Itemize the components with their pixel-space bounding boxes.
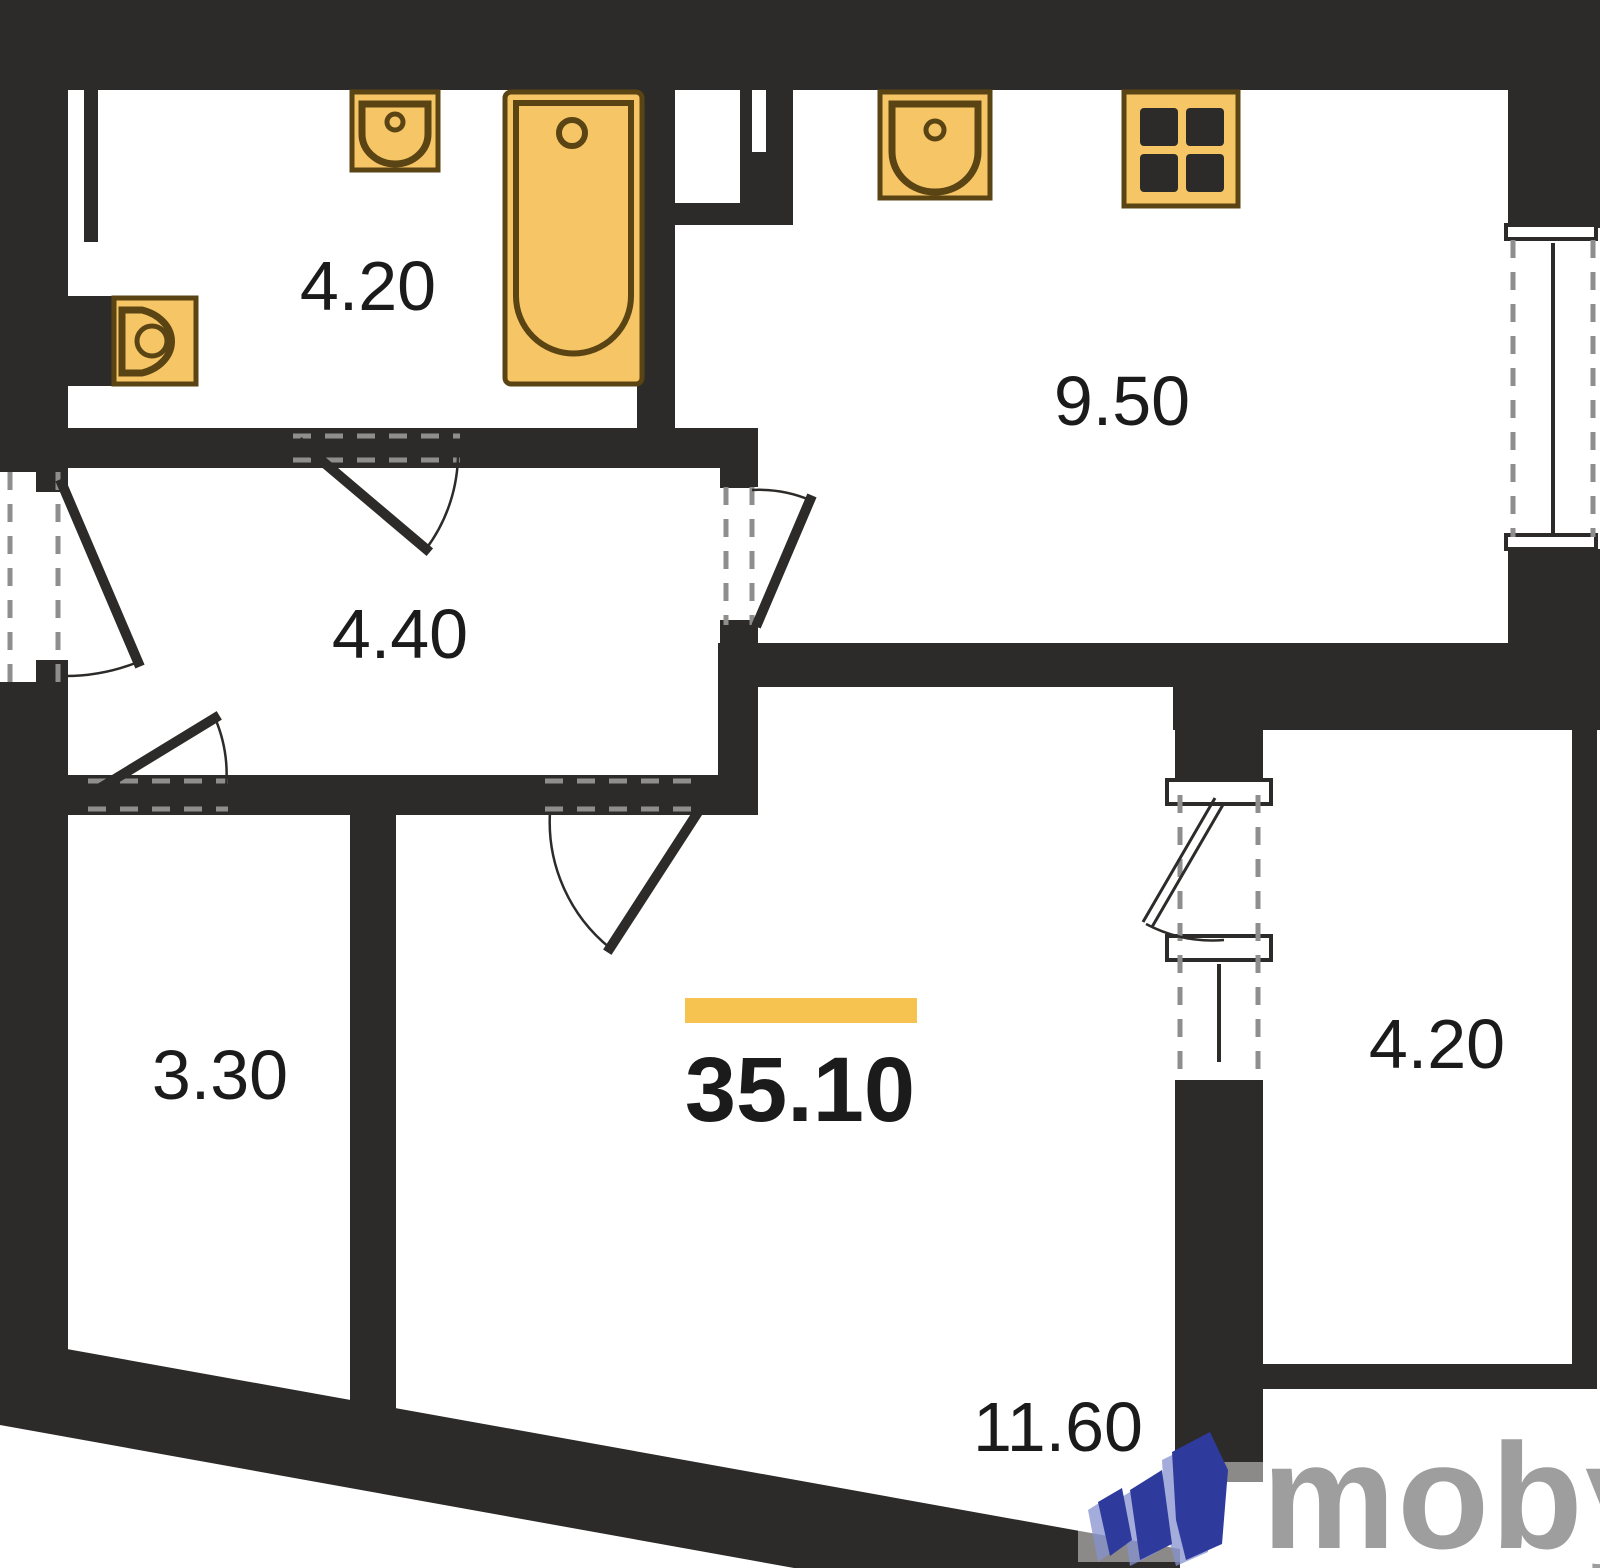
toilet-tank-block: [68, 296, 114, 386]
stove-burner: [1140, 154, 1178, 192]
stove-burner: [1186, 108, 1224, 146]
toilet-icon: [114, 298, 196, 384]
door-post: [36, 660, 68, 682]
vent-shaft-slot: [752, 90, 766, 152]
room-label-hallway: 4.40: [332, 595, 468, 673]
room-regions: [68, 90, 1572, 1407]
floor-plan: 4.20 9.50 4.40 3.30 11.60 4.20 35.10 mob…: [0, 0, 1600, 1568]
wall-cutouts: [70, 90, 1600, 1080]
door-post: [720, 470, 750, 488]
wall-hallway-top: [0, 428, 758, 468]
room-label-balcony: 4.20: [1369, 1005, 1505, 1083]
wall-storage-living: [350, 815, 396, 1420]
kitchen-door-arc: [752, 490, 810, 500]
doors: [62, 444, 1224, 948]
wall-hallway-right: [718, 643, 758, 815]
stove-burner: [1186, 154, 1224, 192]
wall-right-mid: [1508, 549, 1600, 675]
wall-right-upper: [1508, 90, 1600, 228]
wall-left-lower: [0, 682, 68, 1382]
watermark-text: moby: [1262, 1412, 1600, 1568]
wall-left-upper: [0, 90, 68, 472]
wall-balcony-lower: [1175, 1080, 1263, 1482]
living-door-leaf: [610, 812, 698, 948]
walls: [0, 0, 1600, 1568]
wall-balcony-right-thin: [1572, 730, 1597, 1388]
wall-top: [0, 0, 1600, 90]
living-door-arc: [550, 812, 610, 948]
wall-kitchen-bottom: [718, 643, 1508, 687]
kitchen-door-leaf: [758, 500, 810, 622]
vent-shaft-notch: [675, 90, 740, 203]
kitchen-window-sill-top: [1506, 225, 1596, 239]
bathroom-washbasin-icon: [352, 92, 438, 170]
kitchen-window-sill-bottom: [1506, 535, 1596, 549]
wall-niche-slot: [70, 92, 84, 240]
room-label-bathroom: 4.20: [300, 247, 436, 325]
room-label-storage: 3.30: [152, 1036, 288, 1114]
room-label-kitchen: 9.50: [1054, 362, 1190, 440]
stove-icon: [1124, 92, 1238, 206]
entrance-door-leaf: [62, 484, 138, 662]
balcony-sill-top: [1167, 780, 1271, 804]
wall-balcony-upper: [1175, 675, 1263, 793]
bathtub-icon: [505, 92, 642, 384]
total-area-label: 35.10: [685, 1039, 915, 1141]
stove-burner: [1140, 108, 1178, 146]
wall-balcony-bottom-thin: [1263, 1364, 1597, 1389]
wall-niche-strip: [84, 90, 98, 242]
entrance-door-arc: [62, 662, 138, 676]
kitchen-washbasin-icon: [880, 92, 990, 198]
moby-watermark: moby: [1078, 1412, 1600, 1568]
total-area-highlight-bar: [685, 998, 917, 1023]
room-label-living: 11.60: [973, 1388, 1143, 1466]
